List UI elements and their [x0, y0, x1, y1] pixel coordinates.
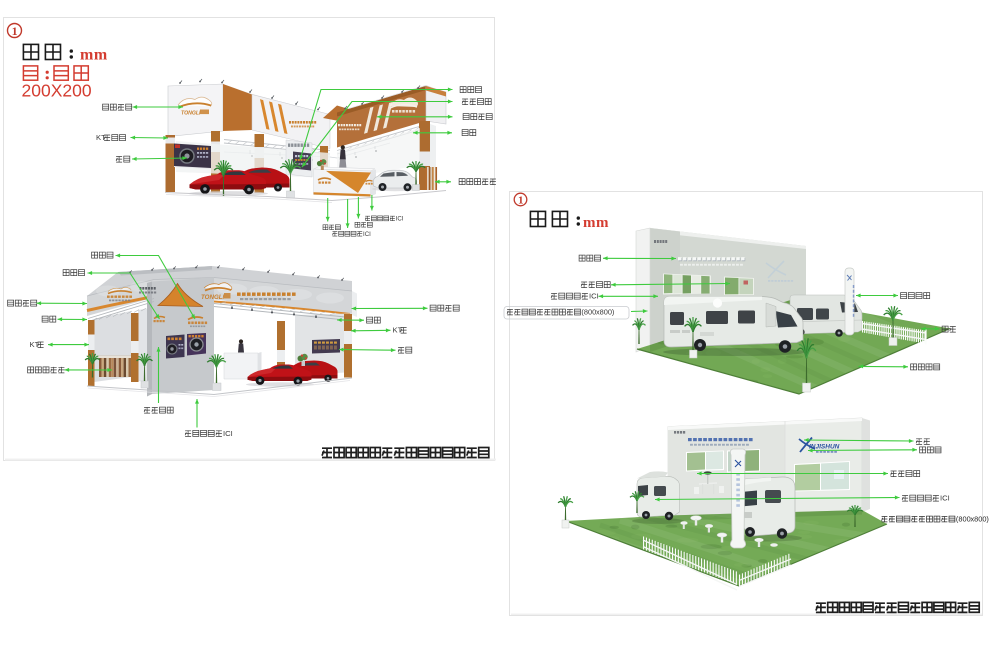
- svg-text:ICI: ICI: [940, 494, 950, 503]
- svg-text:TONGLI: TONGLI: [181, 111, 201, 117]
- svg-text:1: 1: [12, 24, 18, 38]
- svg-text:ICI: ICI: [589, 292, 599, 301]
- svg-text:800): 800): [974, 515, 989, 524]
- svg-text:ICI: ICI: [363, 231, 371, 238]
- svg-text:mm: mm: [80, 47, 108, 64]
- svg-text:(800: (800: [581, 308, 596, 317]
- svg-text:INJISHUN: INJISHUN: [809, 444, 840, 451]
- svg-text:TONGLI: TONGLI: [201, 294, 225, 301]
- svg-text:mm: mm: [583, 215, 609, 231]
- svg-text:ICI: ICI: [396, 215, 404, 222]
- svg-text:ICI: ICI: [223, 429, 233, 438]
- svg-text:1: 1: [518, 195, 524, 207]
- svg-text:800): 800): [600, 308, 615, 317]
- svg-text:(800: (800: [956, 515, 971, 524]
- svg-text:200X200: 200X200: [22, 81, 92, 101]
